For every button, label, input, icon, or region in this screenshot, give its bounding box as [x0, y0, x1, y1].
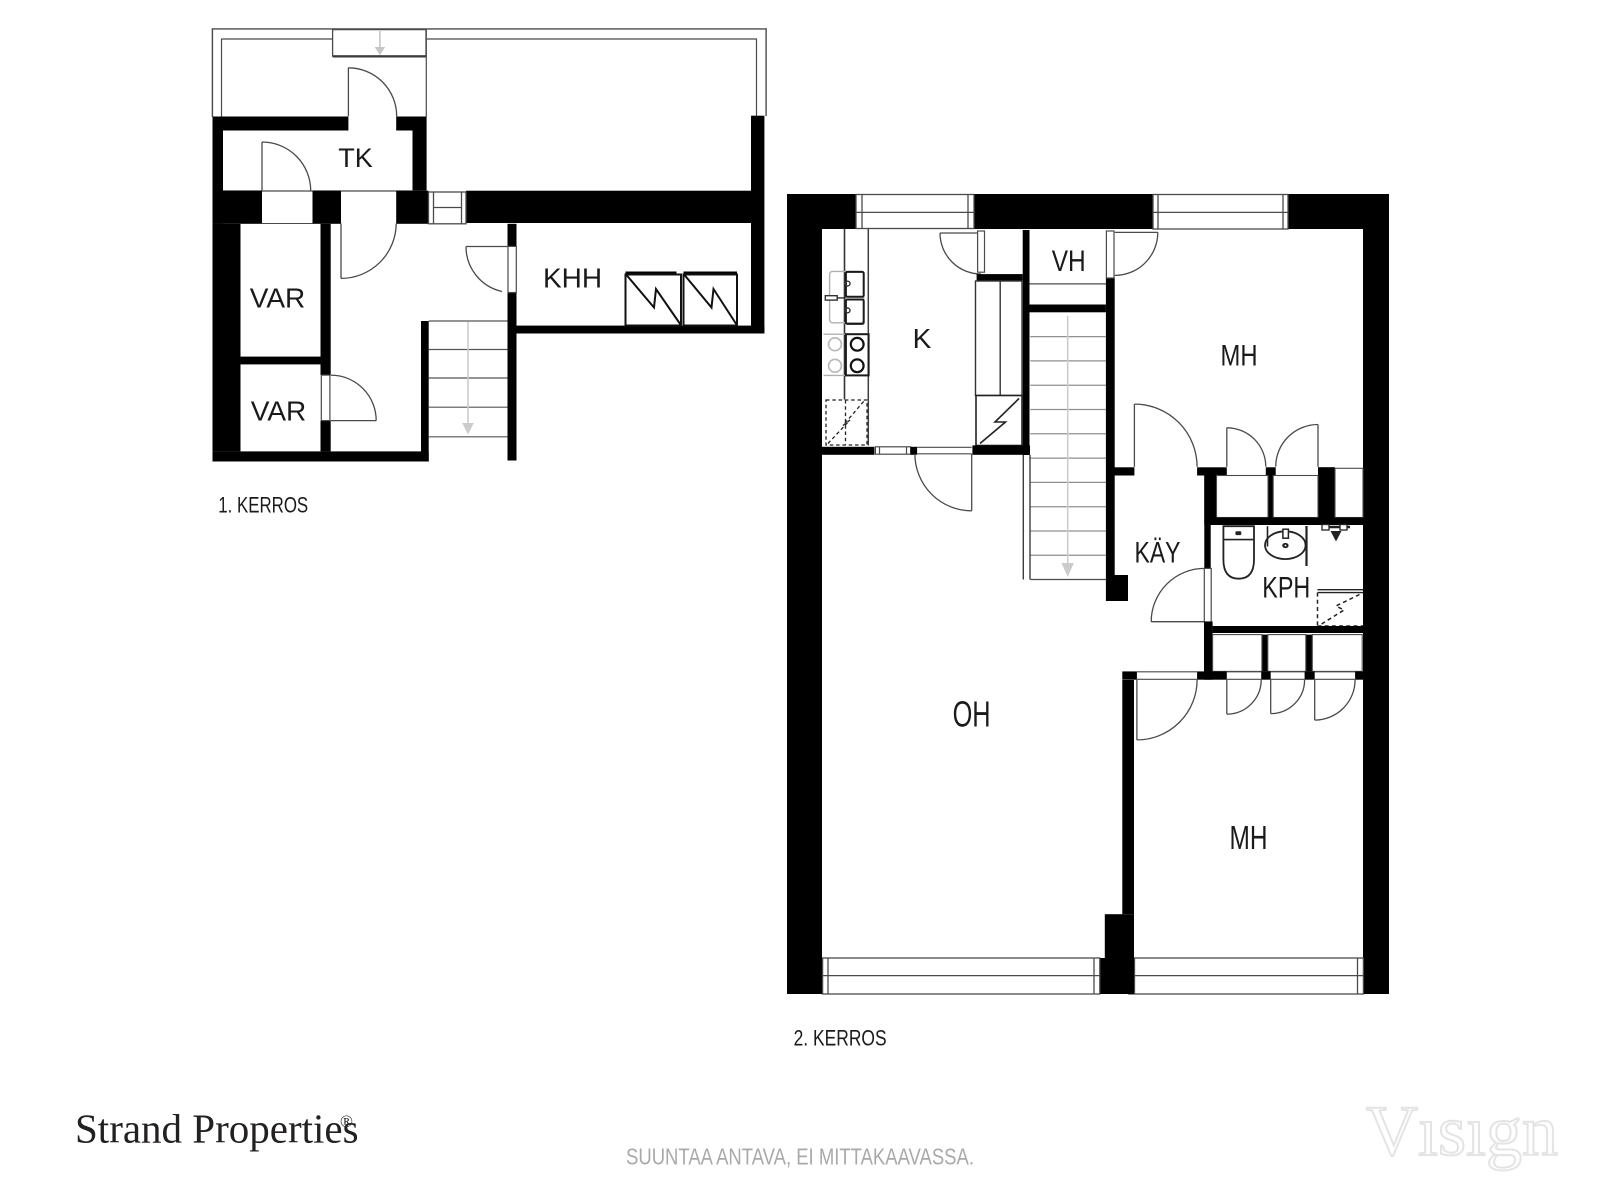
svg-text:®: ® — [340, 1112, 353, 1131]
svg-text:MH: MH — [1221, 340, 1258, 373]
svg-text:KHH: KHH — [543, 263, 602, 294]
svg-text:Strand Properties: Strand Properties — [75, 1106, 359, 1152]
svg-text:Vısıgn: Vısıgn — [1366, 1091, 1558, 1171]
svg-text:VAR: VAR — [251, 396, 307, 427]
svg-text:KÄY: KÄY — [1135, 537, 1181, 570]
svg-text:VAR: VAR — [250, 283, 306, 314]
svg-text:TK: TK — [338, 143, 373, 173]
svg-text:MH: MH — [1230, 819, 1268, 856]
svg-text:2. KERROS: 2. KERROS — [794, 1025, 887, 1050]
svg-text:VH: VH — [1052, 245, 1086, 278]
svg-text:K: K — [913, 323, 932, 354]
svg-text:KPH: KPH — [1262, 572, 1310, 605]
svg-text:1. KERROS: 1. KERROS — [218, 492, 308, 517]
svg-text:OH: OH — [953, 694, 991, 735]
svg-text:SUUNTAA ANTAVA, EI MITTAKAAVAS: SUUNTAA ANTAVA, EI MITTAKAAVASSA. — [626, 1144, 974, 1170]
